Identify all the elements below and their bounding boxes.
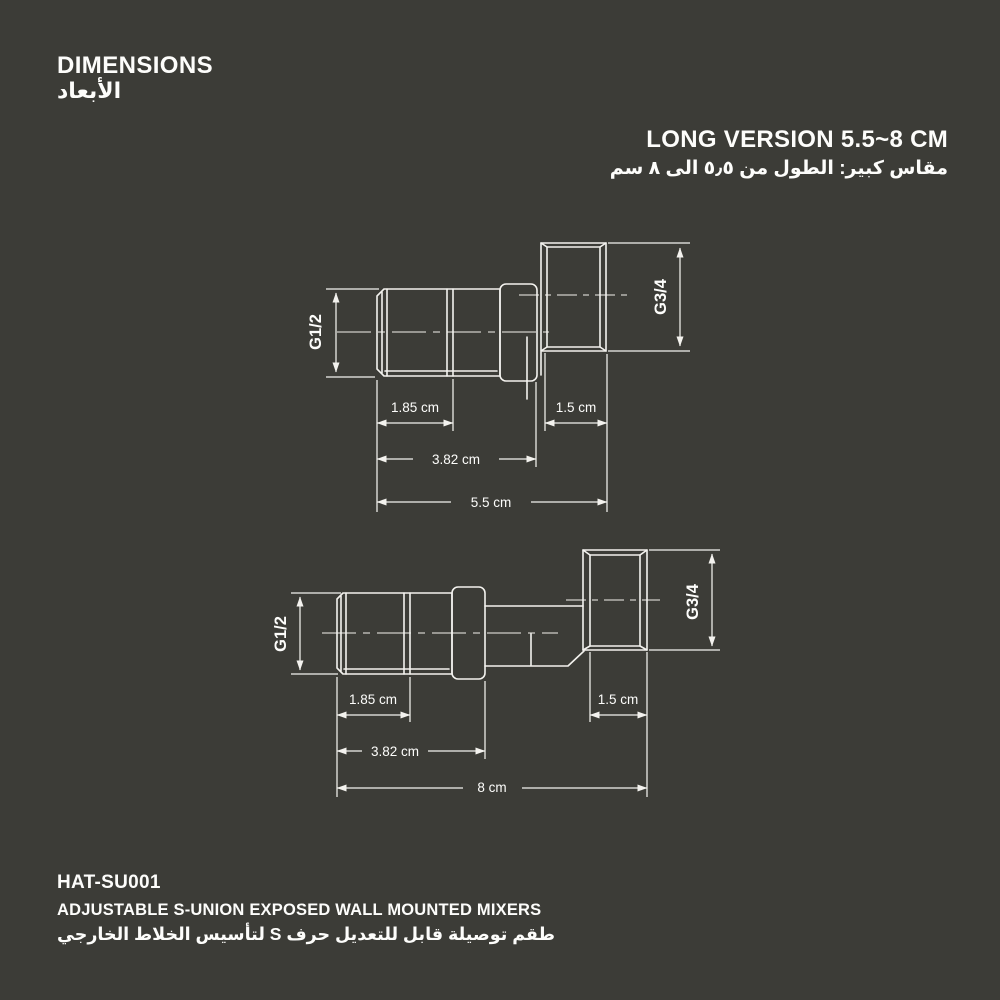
overall-length-label: 5.5 cm [471, 495, 512, 510]
outlet-thread-label: G3/4 [652, 278, 670, 315]
outlet-nut-inner [547, 247, 600, 347]
thread-length-label: 1.85 cm [391, 400, 439, 415]
dimensions-sheet: DIMENSIONS الأبعاد LONG VERSION 5.5~8 CM… [0, 0, 1000, 1000]
outlet-thread-label: G3/4 [684, 583, 702, 620]
product-name: ADJUSTABLE S-UNION EXPOSED WALL MOUNTED … [57, 901, 757, 920]
extension-tube-bottom [485, 651, 584, 666]
inlet-thread-label: G1/2 [307, 314, 325, 350]
product-name-arabic: طقم توصيلة قابل للتعديل حرف S لتأسيس الخ… [57, 924, 757, 945]
short-version-part [337, 243, 627, 399]
overall-length-label: 8 cm [477, 780, 506, 795]
long-version-drawing: G1/2 G3/4 1.85 cm 1.5 cm [272, 550, 720, 797]
nut-width-label: 1.5 cm [598, 692, 639, 707]
body-length-label: 3.82 cm [432, 452, 480, 467]
short-version-dimensions: G1/2 G3/4 1.85 cm 1.5 cm [307, 243, 690, 512]
long-version-dimensions: G1/2 G3/4 1.85 cm 1.5 cm [272, 550, 720, 797]
inlet-thread-label: G1/2 [272, 616, 290, 652]
nut-width-label: 1.5 cm [556, 400, 597, 415]
product-footer: HAT-SU001 ADJUSTABLE S-UNION EXPOSED WAL… [57, 872, 757, 945]
body-length-label: 3.82 cm [371, 744, 419, 759]
thread-length-label: 1.85 cm [349, 692, 397, 707]
long-version-part [322, 550, 660, 679]
technical-drawings: G1/2 G3/4 1.85 cm 1.5 cm [0, 0, 1000, 1000]
short-version-drawing: G1/2 G3/4 1.85 cm 1.5 cm [307, 243, 690, 512]
model-number: HAT-SU001 [57, 872, 757, 894]
outlet-nut [541, 243, 606, 351]
